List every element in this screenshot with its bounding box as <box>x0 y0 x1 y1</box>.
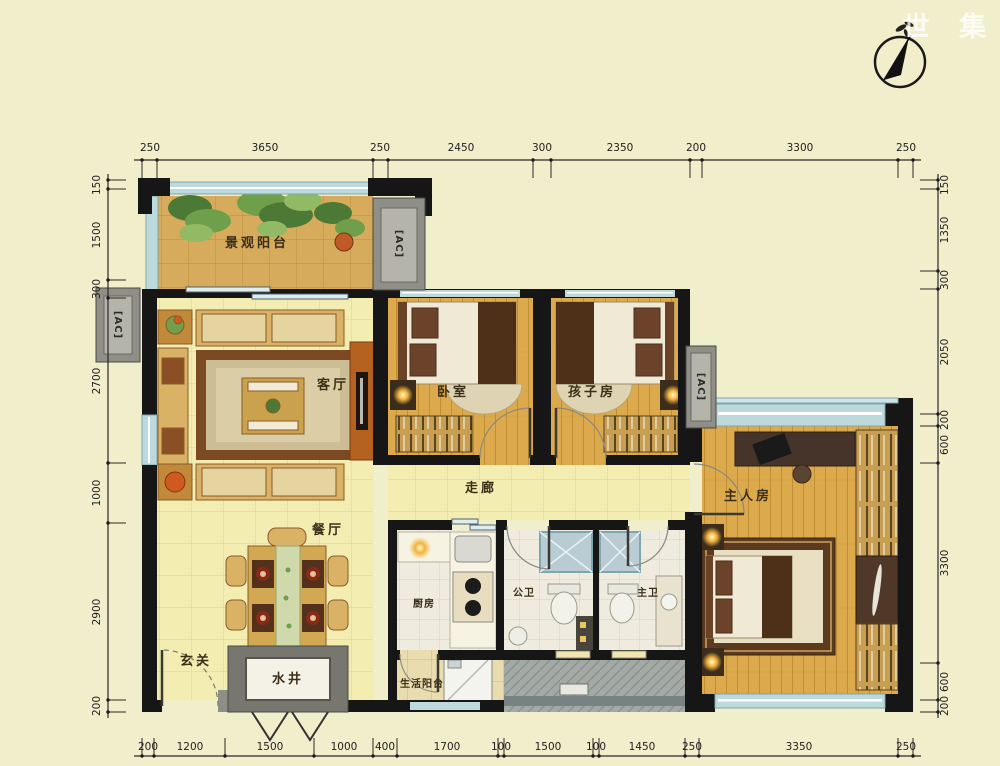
dim-value: 1500 <box>257 741 284 753</box>
ac-label-balcony: [AC] <box>393 230 404 258</box>
corridor-label: 走廊 <box>465 480 497 496</box>
dim-value: 200 <box>138 741 158 753</box>
balcony-label: 景观阳台 <box>225 235 289 251</box>
public-bath-label: 公卫 <box>513 587 535 599</box>
blanket <box>556 302 594 384</box>
wardrobe <box>396 416 472 452</box>
well-label: 水井 <box>272 671 304 687</box>
kitchen-sliding-door <box>452 519 478 524</box>
dim-value: 1000 <box>91 480 103 507</box>
master-label: 主人房 <box>724 488 772 504</box>
sliding-door-panel <box>252 294 348 299</box>
swing-door <box>252 712 288 740</box>
dim-value: 300 <box>91 279 103 299</box>
dim-value: 250 <box>896 741 916 753</box>
kitchen-label: 厨房 <box>413 597 435 610</box>
service-balcony-fixtures <box>444 656 492 706</box>
sliding-door-panel <box>186 287 270 292</box>
dim-value: 300 <box>532 142 552 154</box>
dim-value: 1700 <box>434 741 461 753</box>
vanity <box>656 576 682 646</box>
dim-value: 150 <box>939 175 951 195</box>
dim-labels-top: 250 3650 250 2450 300 2350 200 3300 250 <box>140 142 916 154</box>
lamp-glow <box>702 527 722 547</box>
dim-value: 200 <box>686 142 706 154</box>
dim-value: 1450 <box>629 741 656 753</box>
desk <box>735 432 855 466</box>
water-well <box>228 646 348 740</box>
wash-basin <box>509 627 527 645</box>
sink <box>455 536 491 562</box>
shaft-bottom-band <box>504 696 699 706</box>
dim-value: 3350 <box>786 741 813 753</box>
dim-value: 200 <box>91 696 103 716</box>
blanket <box>478 302 516 384</box>
lamp-glow <box>702 652 722 672</box>
dim-value: 300 <box>939 270 951 290</box>
stool <box>793 465 811 483</box>
dim-value: 2700 <box>91 368 103 395</box>
dining-chair <box>226 600 246 630</box>
dining-chair <box>328 556 348 586</box>
dining-chair <box>328 600 348 630</box>
lamp-glow <box>393 385 413 405</box>
dim-value: 1350 <box>939 217 951 244</box>
dim-value: 2350 <box>607 142 634 154</box>
dim-value: 200 <box>939 696 951 716</box>
corridor-floor <box>388 465 690 520</box>
dim-labels-bottom: 200 1200 1500 1000 400 1700 100 1500 100… <box>138 741 916 753</box>
dim-value: 200 <box>939 410 951 430</box>
dim-value: 1500 <box>91 222 103 249</box>
ac-label-right: [AC] <box>695 373 706 401</box>
dim-value: 250 <box>370 142 390 154</box>
flower-pot <box>335 233 353 251</box>
dim-value: 2450 <box>448 142 475 154</box>
dim-value: 600 <box>939 672 951 692</box>
tv-cabinet <box>350 342 374 460</box>
dim-value: 250 <box>896 142 916 154</box>
dim-value: 100 <box>491 741 511 753</box>
blanket <box>762 556 792 638</box>
kids-label: 孩子房 <box>568 384 616 400</box>
dim-value: 3300 <box>787 142 814 154</box>
service-balcony-label: 生活阳台 <box>400 677 444 690</box>
shaft-vent <box>560 684 588 695</box>
dim-value: 250 <box>140 142 160 154</box>
dim-value: 2050 <box>939 339 951 366</box>
floor-plan-canvas: 景观阳台 客厅 餐厅 玄关 水井 卧室 孩子房 走廊 厨房 公卫 主卫 生活阳台… <box>0 0 1000 766</box>
wardrobe-upper <box>856 430 898 556</box>
dim-value: 3300 <box>939 550 951 577</box>
dim-value: 3650 <box>252 142 279 154</box>
toilet <box>610 593 634 623</box>
floor-plan-drawing: 景观阳台 客厅 餐厅 玄关 水井 卧室 孩子房 走廊 厨房 公卫 主卫 生活阳台… <box>0 0 1000 766</box>
toilet-tank <box>608 584 638 594</box>
ac-label-left: [AC] <box>112 311 123 339</box>
dining-label: 餐厅 <box>311 522 344 538</box>
dining-chair <box>226 556 246 586</box>
bath-window <box>612 651 646 658</box>
dim-value: 1200 <box>177 741 204 753</box>
dim-value: 100 <box>586 741 606 753</box>
bay-window-ledge <box>702 398 898 403</box>
kitchen-sliding-door <box>470 525 496 530</box>
dim-labels-left: 150 1500 300 2700 1000 2900 200 <box>91 175 103 716</box>
ceiling-lamp <box>409 537 431 559</box>
watermark-text: 世 集 <box>903 11 996 43</box>
dim-value: 150 <box>91 175 103 195</box>
bedroom-label: 卧室 <box>437 384 469 400</box>
dim-value: 250 <box>682 741 702 753</box>
wardrobe <box>604 416 678 452</box>
dim-value: 1500 <box>535 741 562 753</box>
living-label: 客厅 <box>317 377 349 393</box>
swing-door <box>292 712 328 740</box>
service-window <box>410 702 480 710</box>
toilet <box>551 592 577 624</box>
dim-value: 400 <box>375 741 395 753</box>
dim-value: 2900 <box>91 599 103 626</box>
dining-chair <box>268 528 306 546</box>
wash-basin <box>661 594 677 610</box>
entry-label: 玄关 <box>180 653 212 669</box>
master-bath-label: 主卫 <box>637 586 659 599</box>
bath-window <box>556 651 590 658</box>
dim-labels-right: 150 1350 300 2050 200 600 3300 600 200 <box>939 175 951 716</box>
wardrobe-lower <box>856 624 898 690</box>
dim-value: 1000 <box>331 741 358 753</box>
coffee-table <box>242 378 304 434</box>
dim-value: 600 <box>939 435 951 455</box>
